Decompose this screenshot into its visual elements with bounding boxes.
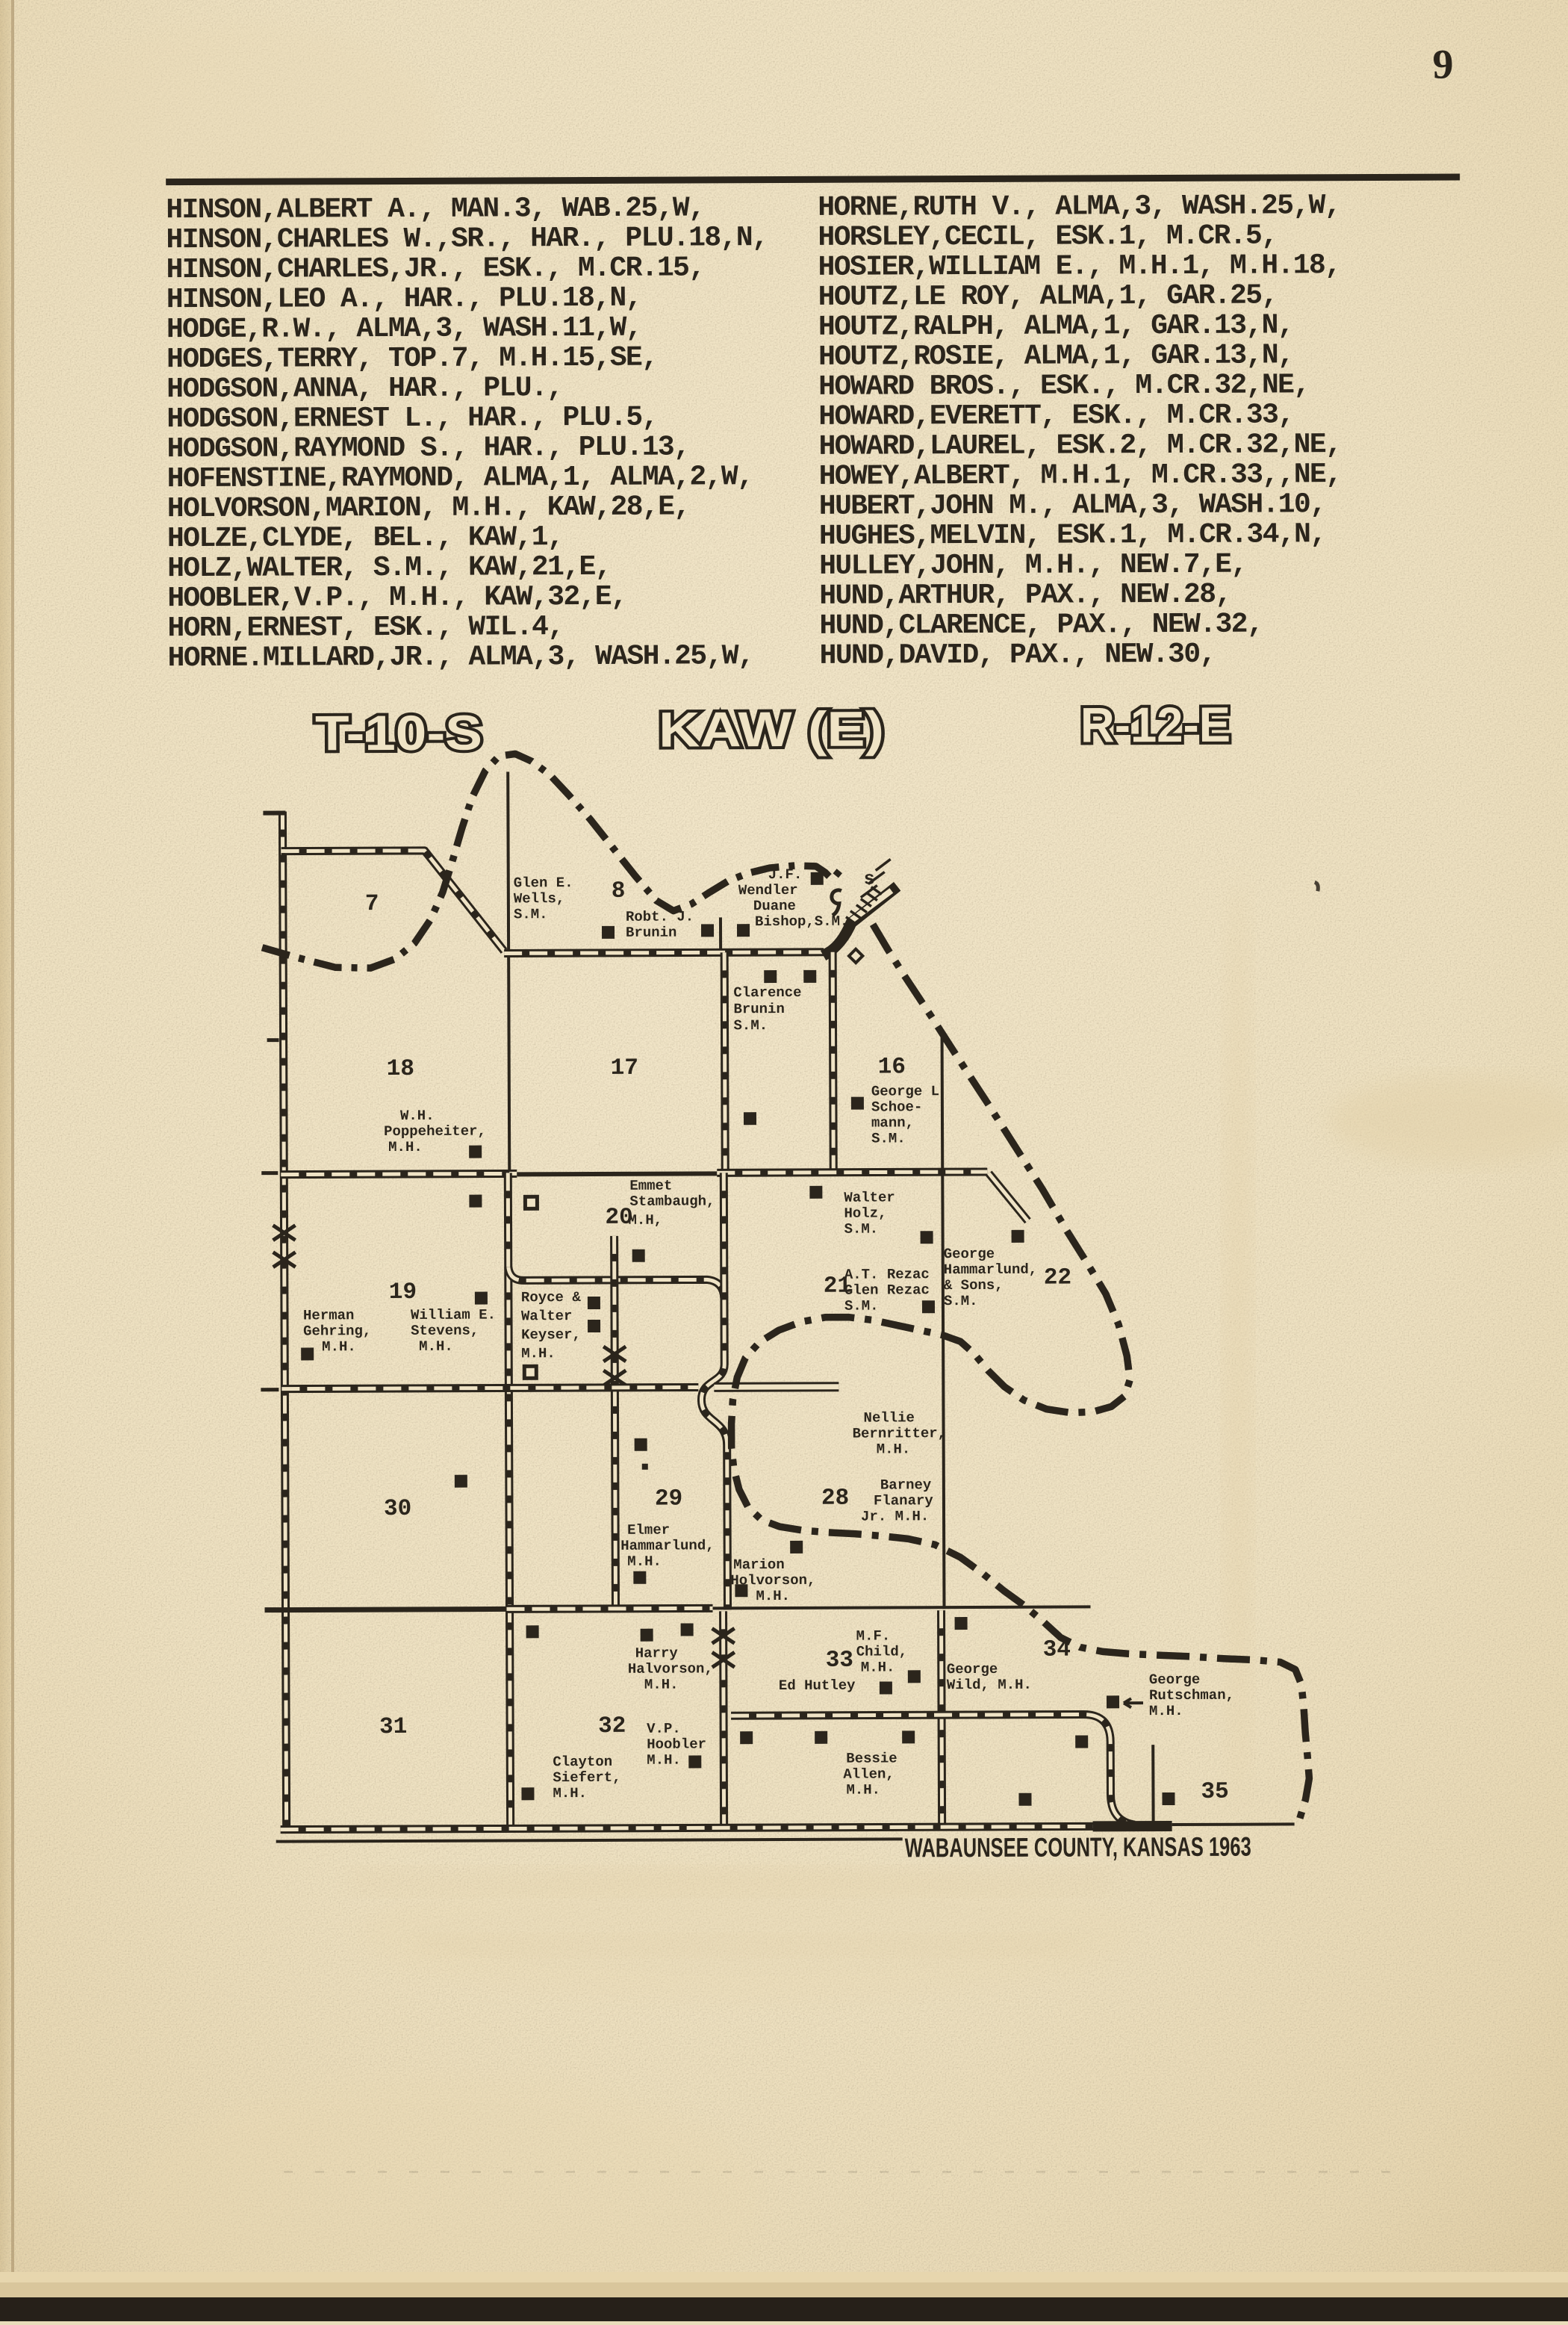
svg-text:HOSIER,WILLIAM E., M.H.1, M.H: HOSIER,WILLIAM E., M.H.1, M.H.18, (818, 249, 1341, 284)
svg-text:Bernritter,: Bernritter, (853, 1425, 947, 1441)
svg-text:Wendler: Wendler (738, 882, 798, 898)
svg-text:HORNE,RUTH V., ALMA,3, WASH.25: HORNE,RUTH V., ALMA,3, WASH.25,W, (818, 190, 1340, 224)
svg-text:Clarence: Clarence (733, 984, 801, 1001)
svg-text:Emmet: Emmet (629, 1178, 672, 1194)
svg-text:Allen,: Allen, (843, 1766, 895, 1782)
svg-text:31: 31 (379, 1714, 407, 1740)
svg-text:& Sons,: & Sons, (944, 1277, 1004, 1294)
svg-text:Halvorson,: Halvorson, (628, 1660, 713, 1677)
svg-text:M.H.: M.H. (388, 1139, 423, 1155)
svg-text:Jr. M.H.: Jr. M.H. (861, 1508, 929, 1524)
svg-text:Bessie: Bessie (846, 1750, 897, 1766)
svg-text:S.M.: S.M. (844, 1221, 879, 1238)
svg-text:Ed Hutley: Ed Hutley (779, 1677, 856, 1694)
svg-text:HOWARD,EVERETT, ESK., M.CR.33,: HOWARD,EVERETT, ESK., M.CR.33, (818, 399, 1293, 432)
svg-text:Herman: Herman (303, 1307, 355, 1323)
svg-text:HODGES,TERRY, TOP.7, M.H.15,S: HODGES,TERRY, TOP.7, M.H.15,SE, (167, 342, 657, 376)
svg-text:M.H.: M.H. (419, 1338, 453, 1355)
svg-text:Holvorson,: Holvorson, (730, 1572, 815, 1589)
svg-text:Hammarlund,: Hammarlund, (620, 1537, 715, 1553)
svg-text:35: 35 (1201, 1779, 1228, 1805)
svg-text:M.H.: M.H. (521, 1345, 556, 1362)
svg-text:HORNE.MILLARD,JR., ALMA,3, WAS: HORNE.MILLARD,JR., ALMA,3, WASH.25,W, (168, 640, 754, 674)
svg-text:HUND,CLARENCE, PAX., NEW.32,: HUND,CLARENCE, PAX., NEW.32, (819, 609, 1263, 642)
svg-text:M.H.: M.H. (1149, 1703, 1183, 1719)
svg-text:Poppeheiter,: Poppeheiter, (384, 1123, 486, 1140)
svg-text:Flanary: Flanary (874, 1492, 933, 1509)
svg-text:Robt. J.: Robt. J. (626, 908, 694, 925)
svg-text:S.M.: S.M. (514, 906, 548, 922)
svg-text:HOLVORSON,MARION, M.H., KAW,28: HOLVORSON,MARION, M.H., KAW,28,E, (167, 491, 690, 525)
svg-text:28: 28 (821, 1486, 849, 1512)
svg-text:HORN,ERNEST, ESK., WIL.4,: HORN,ERNEST, ESK., WIL.4, (167, 611, 563, 645)
svg-text:M.H.: M.H. (846, 1782, 880, 1798)
svg-text:S.M.: S.M. (871, 1130, 906, 1146)
svg-text:17: 17 (611, 1055, 638, 1081)
svg-text:mann,: mann, (871, 1114, 914, 1131)
svg-text:M.H.: M.H. (861, 1659, 895, 1675)
svg-text:Duane: Duane (753, 898, 796, 914)
svg-text:George: George (1149, 1671, 1201, 1688)
svg-text:s: s (864, 869, 875, 890)
svg-text:7: 7 (365, 891, 379, 917)
svg-text:Barney: Barney (880, 1477, 932, 1493)
svg-text:22: 22 (1044, 1265, 1071, 1291)
svg-text:M.F.: M.F. (856, 1627, 891, 1644)
svg-text:V.P.: V.P. (647, 1721, 681, 1737)
svg-text:WABAUNSEE COUNTY, KANSAS 1963: WABAUNSEE COUNTY, KANSAS 1963 (905, 1831, 1251, 1863)
svg-text:HUBERT,JOHN M., ALMA,3, WASH.1: HUBERT,JOHN M., ALMA,3, WASH.10, (819, 488, 1326, 523)
svg-text:HODGSON,RAYMOND S., HAR., PLU.: HODGSON,RAYMOND S., HAR., PLU.13, (167, 431, 689, 465)
svg-text:Clayton: Clayton (553, 1754, 612, 1770)
svg-text:William E.: William E. (411, 1306, 496, 1323)
svg-text:George: George (947, 1661, 998, 1677)
svg-text:HOLZE,CLYDE, BEL., KAW,1,: HOLZE,CLYDE, BEL., KAW,1, (167, 521, 563, 555)
svg-text:Gehring,: Gehring, (303, 1323, 371, 1339)
svg-text:Rutschman,: Rutschman, (1149, 1687, 1234, 1704)
svg-text:Stevens,: Stevens, (411, 1323, 479, 1339)
svg-text:HODGSON,ERNEST L., HAR., PLU.5: HODGSON,ERNEST L., HAR., PLU.5, (167, 402, 657, 436)
svg-text:Brunin: Brunin (733, 1001, 785, 1017)
svg-text:Walter: Walter (521, 1308, 573, 1324)
svg-text:HOOBLER,V.P., M.H., KAW,32,E,: HOOBLER,V.P., M.H., KAW,32,E, (167, 581, 626, 615)
svg-text:Nellie: Nellie (863, 1409, 915, 1426)
svg-text:George: George (944, 1246, 995, 1262)
svg-text:T-10-S: T-10-S (315, 705, 482, 761)
svg-text:21: 21 (824, 1273, 851, 1300)
svg-text:19: 19 (389, 1279, 417, 1306)
svg-text:M.H.: M.H. (627, 1553, 662, 1570)
svg-text:HOUTZ,LE ROY, ALMA,1, GAR.25,: HOUTZ,LE ROY, ALMA,1, GAR.25, (818, 279, 1278, 313)
svg-text:Hoobler: Hoobler (647, 1736, 706, 1752)
svg-text:M.H.: M.H. (756, 1588, 790, 1604)
svg-text:34: 34 (1043, 1637, 1071, 1663)
svg-text:Schoe-: Schoe- (871, 1099, 923, 1115)
svg-text:HUGHES,MELVIN, ESK.1, M.CR.34: HUGHES,MELVIN, ESK.1, M.CR.34,N, (819, 518, 1326, 553)
svg-text:Marion: Marion (733, 1556, 785, 1573)
svg-text:16: 16 (878, 1054, 906, 1080)
svg-text:M.H.: M.H. (647, 1752, 681, 1769)
svg-text:20: 20 (605, 1205, 632, 1231)
svg-text:HOFENSTINE,RAYMOND, ALMA,1, AL: HOFENSTINE,RAYMOND, ALMA,1, ALMA,2,W, (167, 461, 753, 495)
svg-text:30: 30 (384, 1496, 411, 1522)
svg-text:HODGE,R.W., ALMA,3, WASH.11,W,: HODGE,R.W., ALMA,3, WASH.11,W, (167, 312, 641, 346)
svg-text:M.H.: M.H. (644, 1677, 679, 1693)
svg-text:Keyser,: Keyser, (521, 1326, 581, 1343)
svg-text:J.F.: J.F. (768, 866, 803, 883)
svg-text:George L: George L (871, 1083, 939, 1099)
svg-text:HOWARD,LAUREL, ESK.2, M.CR.32: HOWARD,LAUREL, ESK.2, M.CR.32,NE, (818, 429, 1341, 463)
svg-text:HOWEY,ALBERT, M.H.1, M.CR.33,: HOWEY,ALBERT, M.H.1, M.CR.33,,NE, (819, 459, 1342, 493)
svg-text:Holz,: Holz, (844, 1205, 886, 1221)
svg-text:R-12-E: R-12-E (1080, 697, 1231, 753)
svg-text:HULLEY,JOHN, M.H., NEW.7,E,: HULLEY,JOHN, M.H., NEW.7,E, (819, 549, 1247, 583)
svg-text:S.M.: S.M. (944, 1293, 978, 1309)
svg-text:Brunin: Brunin (626, 925, 677, 941)
svg-text:M.H,: M.H, (628, 1212, 662, 1229)
svg-text:HINSON,CHARLES W.,SR., HAR., P: HINSON,CHARLES W.,SR., HAR., PLU.18,N, (166, 222, 768, 256)
svg-text:Wild, M.H.: Wild, M.H. (947, 1677, 1032, 1693)
svg-text:Elmer: Elmer (627, 1522, 670, 1539)
svg-text:HUND,ARTHUR, PAX., NEW.28,: HUND,ARTHUR, PAX., NEW.28, (819, 579, 1231, 612)
svg-text:Glen E.: Glen E. (514, 875, 573, 891)
svg-text:HOUTZ,RALPH, ALMA,1, GAR.13,N,: HOUTZ,RALPH, ALMA,1, GAR.13,N, (818, 309, 1293, 343)
svg-text:32: 32 (598, 1713, 626, 1739)
svg-text:HUND,DAVID, PAX., NEW.30,: HUND,DAVID, PAX., NEW.30, (820, 639, 1216, 672)
svg-text:M.H.: M.H. (877, 1441, 911, 1457)
svg-text:A.T. Rezac: A.T. Rezac (844, 1266, 930, 1282)
svg-text:Hammarlund,: Hammarlund, (944, 1261, 1038, 1278)
svg-text:HOUTZ,ROSIE, ALMA,1, GAR.13,N,: HOUTZ,ROSIE, ALMA,1, GAR.13,N, (818, 339, 1293, 373)
svg-text:HOWARD BROS., ESK., M.CR.32,NE: HOWARD BROS., ESK., M.CR.32,NE, (818, 369, 1309, 403)
svg-text:HODGSON,ANNA, HAR., PLU.,: HODGSON,ANNA, HAR., PLU., (167, 372, 562, 406)
svg-text:Royce &: Royce & (521, 1289, 581, 1306)
svg-text:S.M.: S.M. (844, 1298, 879, 1314)
svg-text:M.H.: M.H. (553, 1785, 587, 1801)
svg-text:Stambaugh,: Stambaugh, (629, 1193, 715, 1209)
svg-text:HINSON,LEO A., HAR., PLU.18,N,: HINSON,LEO A., HAR., PLU.18,N, (167, 282, 641, 316)
svg-text:HINSON,CHARLES,JR., ESK., M.CR: HINSON,CHARLES,JR., ESK., M.CR.15, (167, 252, 705, 286)
svg-text:9: 9 (1432, 42, 1453, 88)
svg-text:18: 18 (387, 1056, 414, 1082)
svg-text:S.M.: S.M. (733, 1017, 768, 1034)
svg-text:Bishop,S.M.: Bishop,S.M. (755, 913, 849, 930)
svg-text:Walter: Walter (844, 1189, 895, 1205)
svg-text:Siefert,: Siefert, (553, 1769, 620, 1786)
svg-text:Child,: Child, (856, 1643, 908, 1660)
svg-text:33: 33 (826, 1648, 853, 1674)
svg-text:Harry: Harry (635, 1645, 679, 1662)
svg-text:Wells,: Wells, (514, 890, 565, 907)
svg-text:W.H.: W.H. (400, 1108, 435, 1124)
svg-text:M.H.: M.H. (322, 1338, 356, 1355)
svg-text:HORSLEY,CECIL, ESK.1, M.CR.5,: HORSLEY,CECIL, ESK.1, M.CR.5, (818, 220, 1277, 253)
svg-text:HINSON,ALBERT A., MAN.3, WAB.: HINSON,ALBERT A., MAN.3, WAB.25,W, (166, 192, 704, 226)
svg-text:Glen Rezac: Glen Rezac (844, 1282, 930, 1298)
svg-text:29: 29 (655, 1486, 682, 1512)
svg-text:HOLZ,WALTER, S.M., KAW,21,E,: HOLZ,WALTER, S.M., KAW,21,E, (167, 551, 611, 585)
svg-text:KAW (E): KAW (E) (659, 701, 884, 757)
svg-text:8: 8 (612, 878, 626, 904)
